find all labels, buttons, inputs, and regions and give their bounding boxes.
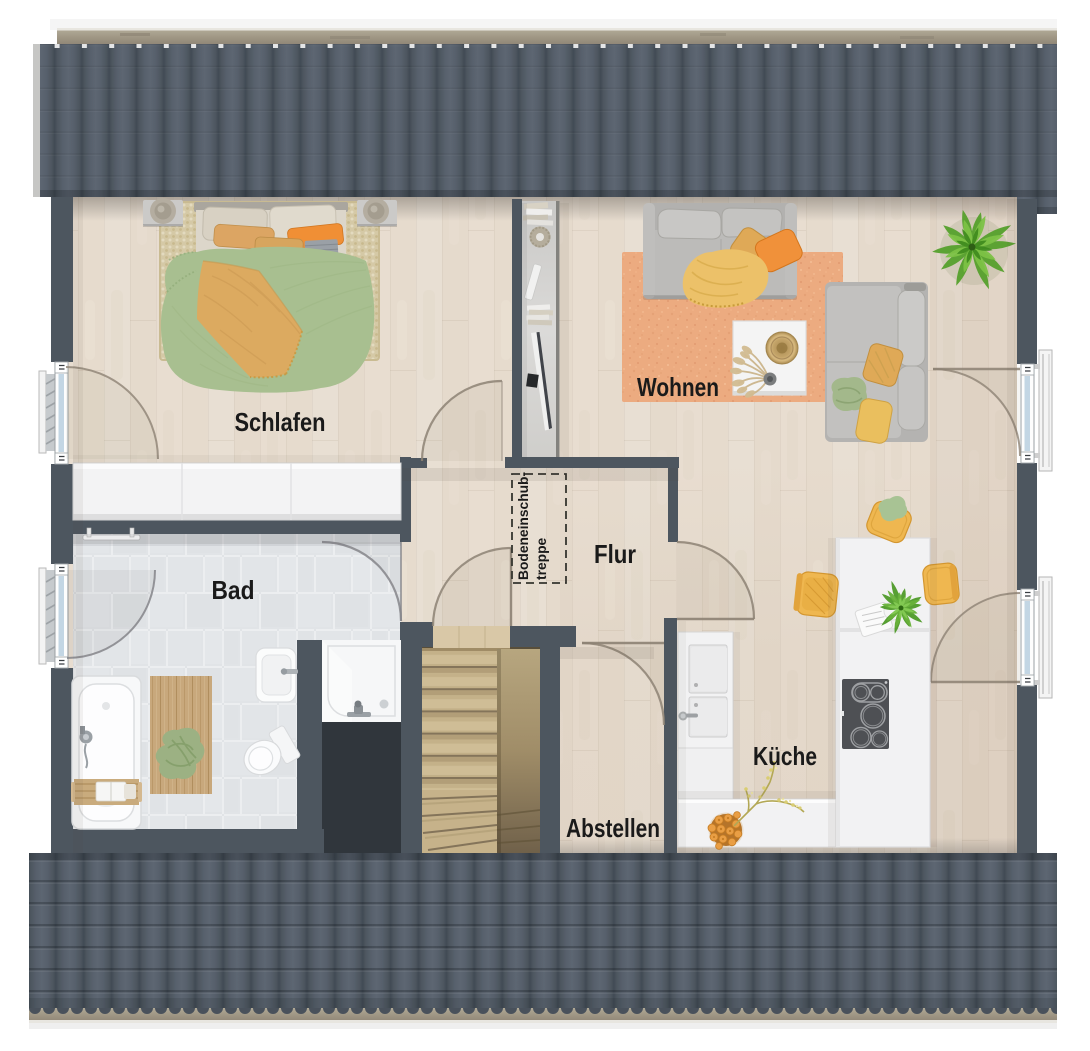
svg-text:Abstellen: Abstellen: [566, 813, 660, 843]
svg-text:Bad: Bad: [212, 575, 255, 605]
svg-text:Flur: Flur: [594, 539, 636, 569]
svg-text:treppe: treppe: [534, 538, 549, 580]
svg-text:Küche: Küche: [753, 741, 817, 771]
svg-text:Bodeneinschub-: Bodeneinschub-: [516, 472, 531, 580]
svg-text:Wohnen: Wohnen: [637, 372, 719, 402]
svg-text:Schlafen: Schlafen: [235, 407, 326, 437]
